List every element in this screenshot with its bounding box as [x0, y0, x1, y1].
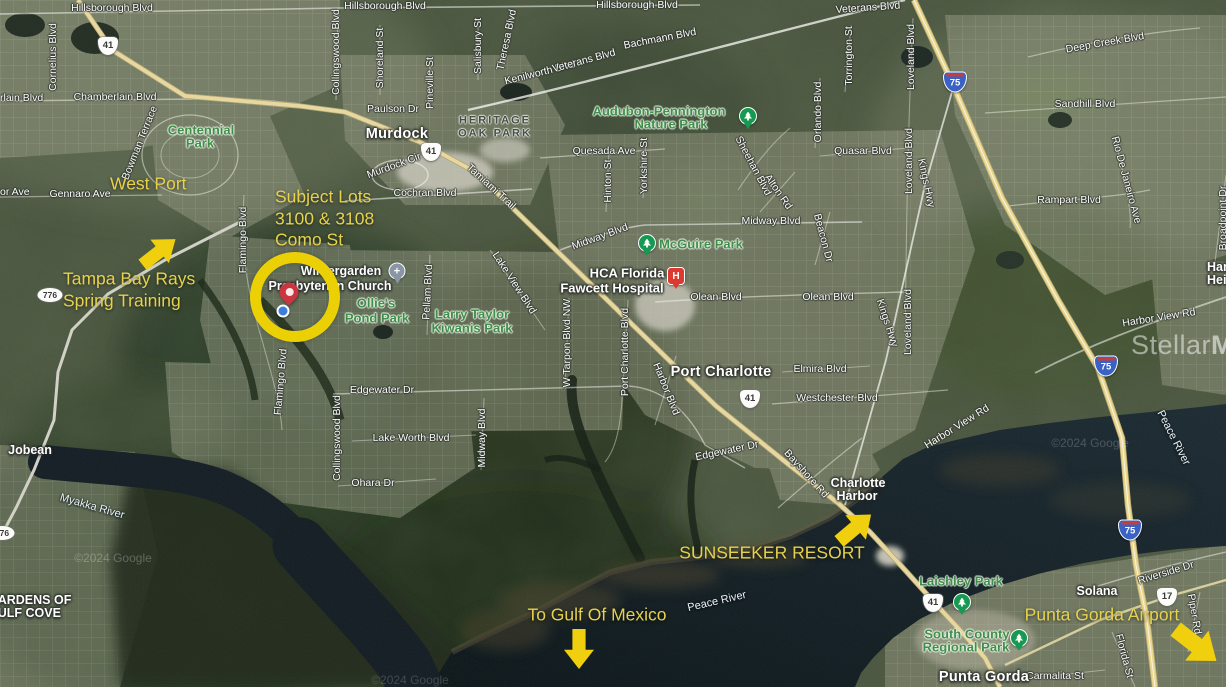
- stellar-mls-watermark: StellarMLS: [1131, 330, 1226, 361]
- annotation-text: 3100 & 3108: [275, 210, 374, 228]
- annotation-text: Subject Lots: [275, 188, 371, 206]
- annotation-overlay-layer: West PortSubject Lots3100 & 3108Como StT…: [0, 0, 1226, 687]
- watermark-text: MLS: [1211, 330, 1226, 360]
- annotation-text: Como St: [275, 231, 343, 249]
- google-copyright-watermark: ©2024 Google: [74, 551, 152, 565]
- annotation-text: To Gulf Of Mexico: [527, 606, 666, 624]
- annotation-text: Spring Training: [63, 292, 181, 310]
- annotation-arrow-icon: [564, 629, 594, 669]
- annotation-text: Tampa Bay Rays: [63, 270, 195, 288]
- google-copyright-watermark: ©2024 Google: [371, 673, 449, 687]
- annotation-text: Punta Gorda Airport: [1025, 606, 1180, 624]
- annotation-text: West Port: [110, 175, 187, 193]
- watermark-text: Stellar: [1131, 330, 1211, 360]
- satellite-map-screenshot: Hillsborough BlvdHillsborough BlvdHillsb…: [0, 0, 1226, 687]
- annotation-text: SUNSEEKER RESORT: [679, 544, 864, 562]
- google-copyright-watermark: ©2024 Google: [1051, 436, 1129, 450]
- subject-highlight-circle: [250, 252, 340, 342]
